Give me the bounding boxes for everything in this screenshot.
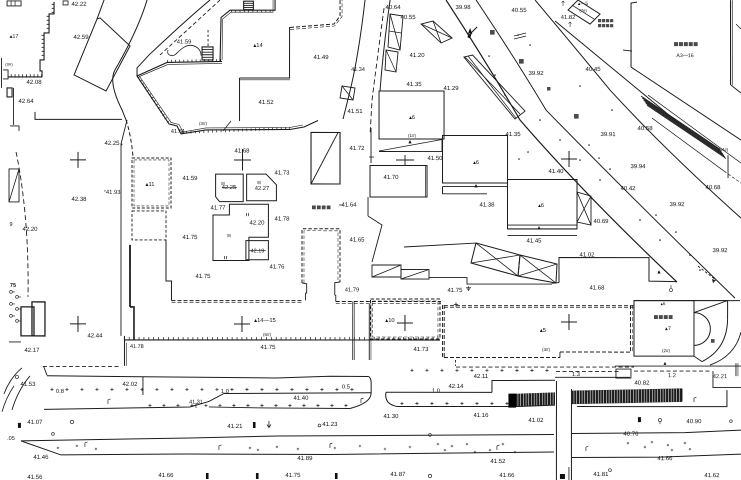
svg-text:39.98: 39.98 [456, 5, 472, 11]
svg-text:41.52: 41.52 [490, 459, 506, 465]
svg-text:41.72: 41.72 [350, 146, 366, 152]
svg-text:41.79: 41.79 [345, 287, 360, 293]
svg-text:42.20: 42.20 [249, 220, 265, 226]
svg-text:39.92: 39.92 [529, 71, 545, 77]
svg-text:41.34: 41.34 [351, 67, 365, 73]
svg-text:40.82: 40.82 [634, 381, 650, 387]
svg-text:(2#): (2#) [662, 348, 671, 353]
svg-text:(1#): (1#) [408, 133, 417, 138]
svg-text:41.53: 41.53 [20, 382, 36, 388]
svg-text:(7#): (7#) [579, 8, 587, 13]
svg-text:41.38: 41.38 [480, 203, 496, 209]
svg-text:▴14—15: ▴14—15 [254, 318, 276, 324]
svg-text:41.75: 41.75 [285, 473, 301, 479]
svg-text:41.29: 41.29 [444, 86, 460, 92]
svg-text:42.25: 42.25 [222, 185, 237, 191]
svg-text:42.08: 42.08 [27, 80, 43, 86]
svg-text:41.87: 41.87 [390, 472, 406, 478]
svg-text:1.0: 1.0 [432, 389, 440, 395]
svg-text:40.69: 40.69 [593, 219, 609, 225]
svg-text:(0#): (0#) [5, 62, 13, 67]
svg-text:(3#): (3#) [542, 347, 551, 352]
svg-text:41.45: 41.45 [526, 239, 542, 245]
svg-text:41.46: 41.46 [33, 455, 49, 461]
svg-text:41.52: 41.52 [259, 100, 275, 106]
svg-text:39.92: 39.92 [670, 202, 686, 208]
svg-text:41.66: 41.66 [499, 473, 515, 479]
svg-text:41.73: 41.73 [275, 170, 291, 176]
svg-text:▴6: ▴6 [661, 301, 666, 306]
svg-text:41.78: 41.78 [130, 344, 144, 350]
svg-text:0.8: 0.8 [56, 389, 64, 395]
svg-text:41.51: 41.51 [348, 109, 364, 115]
svg-text:41.21: 41.21 [227, 424, 243, 430]
svg-text:41.50: 41.50 [428, 156, 444, 162]
svg-text:41.61: 41.61 [171, 129, 186, 135]
svg-text:41.64: 41.64 [342, 202, 358, 208]
svg-text:41.59: 41.59 [177, 39, 192, 45]
svg-text:41.75: 41.75 [447, 288, 463, 294]
svg-text:▴10: ▴10 [385, 318, 394, 324]
svg-text:41.40: 41.40 [293, 396, 309, 402]
svg-text:41.07: 41.07 [27, 420, 43, 426]
svg-text:0.5: 0.5 [342, 384, 350, 390]
svg-text:40.76: 40.76 [623, 432, 639, 438]
svg-text:41.73: 41.73 [413, 347, 429, 353]
svg-text:42.11: 42.11 [474, 374, 489, 380]
svg-text:41.68: 41.68 [589, 286, 605, 292]
svg-text:42.14: 42.14 [448, 384, 464, 390]
svg-text:42.21: 42.21 [713, 374, 728, 380]
svg-text:41.23: 41.23 [322, 422, 338, 428]
svg-text:▴—5: ▴—5 [578, 1, 589, 7]
svg-text:41.66: 41.66 [158, 473, 174, 479]
svg-text:41.02: 41.02 [579, 253, 595, 259]
svg-text:42.44: 42.44 [87, 333, 103, 339]
svg-text:39.91: 39.91 [601, 132, 617, 138]
svg-text:▴7: ▴7 [665, 326, 671, 332]
svg-text:41.59: 41.59 [183, 176, 199, 182]
svg-text:41.70: 41.70 [384, 175, 400, 181]
svg-text:41.75: 41.75 [260, 345, 276, 351]
svg-text:A3—16: A3—16 [676, 53, 693, 59]
svg-text:41.20: 41.20 [410, 53, 426, 59]
svg-text:41.35: 41.35 [506, 132, 522, 138]
svg-text:41.65: 41.65 [349, 237, 365, 243]
svg-text:▴6: ▴6 [409, 115, 415, 121]
svg-text:1.2: 1.2 [668, 373, 676, 379]
svg-text:40.68: 40.68 [706, 185, 722, 191]
svg-text:▴14: ▴14 [253, 43, 263, 49]
svg-text:▴6: ▴6 [538, 203, 544, 209]
svg-text:40.58: 40.58 [638, 126, 654, 132]
svg-text:42.20: 42.20 [22, 227, 38, 233]
svg-text:42.59: 42.59 [74, 35, 90, 41]
svg-text:41.35: 41.35 [407, 82, 423, 88]
svg-text:▴5: ▴5 [540, 328, 546, 334]
svg-text:42.19: 42.19 [251, 248, 265, 254]
svg-text:°41.93: °41.93 [104, 190, 121, 196]
svg-text:▴11: ▴11 [146, 182, 155, 188]
svg-text:41.76: 41.76 [269, 264, 285, 270]
svg-text:41.30: 41.30 [383, 414, 399, 420]
svg-text:40.90: 40.90 [686, 419, 702, 425]
svg-text:40.64: 40.64 [386, 5, 402, 11]
svg-text:39.94: 39.94 [631, 164, 647, 170]
svg-text:41.56: 41.56 [27, 475, 43, 480]
svg-text:.05: .05 [7, 436, 15, 442]
svg-text:75: 75 [10, 283, 16, 289]
svg-text:41.89: 41.89 [297, 456, 313, 462]
svg-text:41.62: 41.62 [704, 473, 720, 479]
svg-text:41.02: 41.02 [528, 418, 544, 424]
svg-text:42.27: 42.27 [255, 186, 270, 192]
svg-text:▴6: ▴6 [473, 160, 479, 166]
svg-text:39.92: 39.92 [712, 248, 728, 254]
svg-text:42.17: 42.17 [24, 348, 40, 354]
svg-text:40.55: 40.55 [512, 8, 528, 14]
svg-text:41.16: 41.16 [473, 413, 489, 419]
svg-text:▴17: ▴17 [10, 34, 19, 40]
svg-text:41.75: 41.75 [182, 235, 198, 241]
svg-text:42.64: 42.64 [19, 99, 35, 105]
svg-text:9: 9 [9, 222, 12, 228]
svg-text:40.45: 40.45 [586, 67, 602, 73]
svg-text:42.22: 42.22 [72, 2, 88, 8]
svg-text:41.66: 41.66 [657, 456, 673, 462]
svg-text:1.0: 1.0 [221, 389, 229, 395]
svg-text:41.78: 41.78 [274, 216, 290, 222]
svg-text:41.75: 41.75 [195, 274, 211, 280]
svg-text:(3#): (3#) [199, 121, 208, 126]
svg-text:41.40: 41.40 [549, 169, 565, 175]
svg-text:41.49: 41.49 [314, 55, 330, 61]
svg-text:41.77: 41.77 [210, 205, 226, 211]
svg-text:41.82: 41.82 [561, 15, 576, 21]
svg-text:42.25: 42.25 [105, 141, 121, 147]
svg-text:40.42: 40.42 [621, 186, 637, 192]
svg-text:42.38: 42.38 [72, 197, 88, 203]
svg-text:(6#): (6#) [263, 332, 272, 337]
svg-text:42.02: 42.02 [122, 382, 138, 388]
svg-text:41.81: 41.81 [593, 472, 609, 478]
